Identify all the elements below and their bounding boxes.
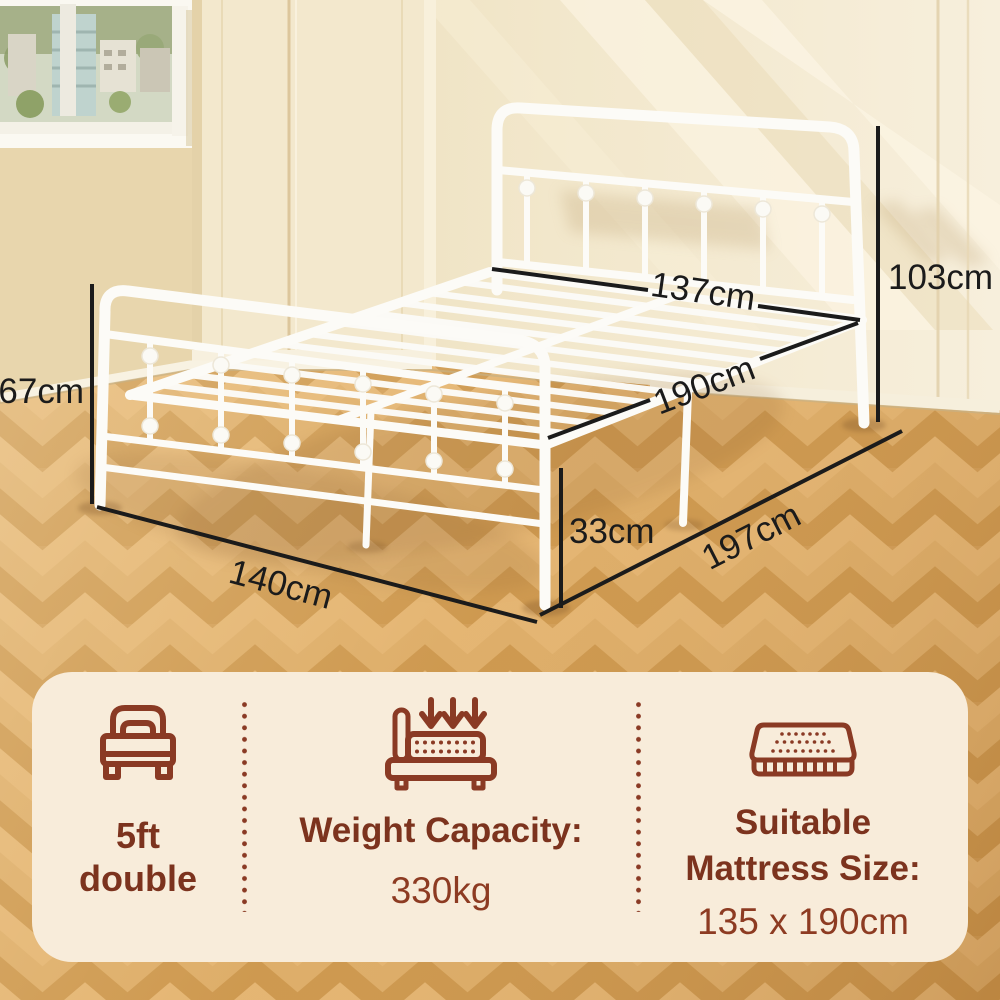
spec-panel: 5ft double Weight Capacity: 330kg <box>32 672 968 962</box>
mattress-dots <box>771 732 835 753</box>
weight-capacity-value: 330kg <box>391 870 492 912</box>
dim-base-height-label: 33cm <box>569 512 655 551</box>
mattress-size-value: 135 x 190cm <box>697 901 909 943</box>
mattress-icon <box>748 722 858 780</box>
dim-headboard-height-label: 103cm <box>888 258 993 297</box>
mattress-size-title: Suitable Mattress Size: <box>663 800 943 891</box>
support-leg-center <box>366 410 371 545</box>
single-bed-icon <box>95 702 181 798</box>
feature-weight-capacity: Weight Capacity: 330kg <box>244 672 638 962</box>
mattress-dots <box>415 741 475 754</box>
bed-size-line1: 5ft <box>79 814 197 857</box>
window <box>0 0 200 152</box>
dim-footboard-height-label: 67cm <box>0 372 84 411</box>
dotted-divider <box>636 702 641 912</box>
weight-capacity-title: Weight Capacity: <box>299 808 582 854</box>
feature-mattress-size: Suitable Mattress Size: 135 x 190cm <box>638 672 968 962</box>
bed-frame-infographic: 137cm 190cm 103cm 67cm 33cm 197cm 140cm <box>0 0 1000 1000</box>
feature-bed-size: 5ft double <box>32 672 244 962</box>
weight-capacity-icon <box>379 696 503 792</box>
dotted-divider <box>242 702 247 912</box>
window-city-view <box>0 4 172 124</box>
bed-size-line2: double <box>79 857 197 900</box>
